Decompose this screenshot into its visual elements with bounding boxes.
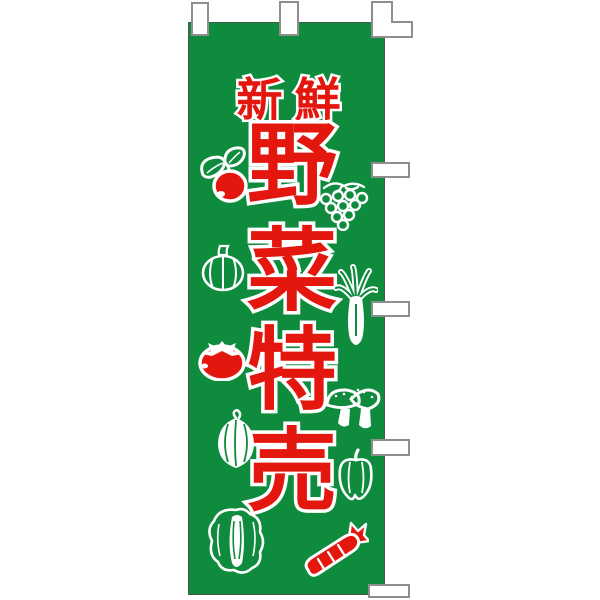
hanging-tab-top-center [279,1,299,36]
product-photo-canvas: { "banner": { "header_text": "新鮮", "vert… [0,0,600,600]
hanging-tab-bottom-right [368,584,410,598]
hanging-tab-right-2 [371,301,410,317]
tomato-icon [198,334,247,381]
nobori-banner: 新鮮 野 菜 特 売 [188,22,385,595]
radish-icon [198,145,254,203]
pumpkin-icon [200,243,246,293]
onion-icon [214,409,259,473]
hanging-tab-right-1 [371,162,410,178]
mushrooms-icon [323,380,383,431]
banner-vertical-char-2: 菜 [247,226,337,316]
hanging-tab-top-right [369,0,414,40]
banner-vertical-char-4: 売 [247,426,337,516]
napa-cabbage-icon [207,506,265,577]
bell-pepper-icon [336,448,375,503]
grapes-icon [312,178,374,231]
carrot-icon [303,520,369,577]
hanging-tab-right-3 [371,439,410,456]
hanging-tab-top-left [191,2,209,36]
